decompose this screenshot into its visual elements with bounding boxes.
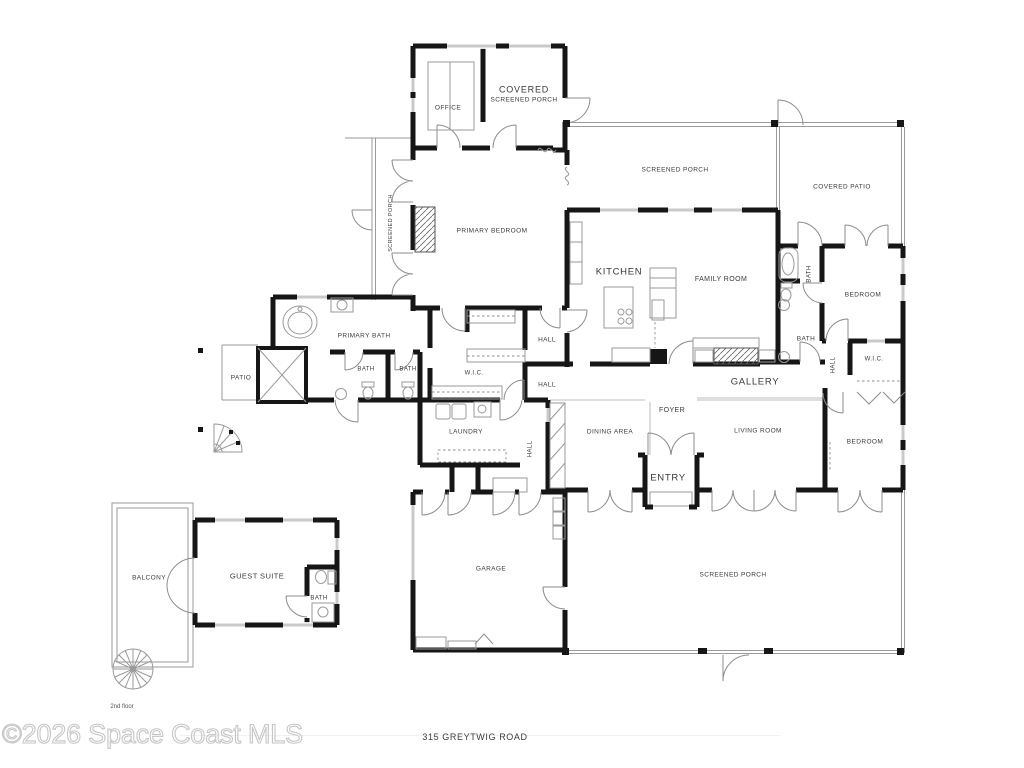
room-label-bath-a: BATH [357,367,374,374]
room-label-gallery: GALLERY [731,378,780,389]
bathtub-primary [283,306,317,338]
floor-note: 2nd floor [110,704,133,710]
toilet [402,382,414,399]
spiral-staircase [113,649,153,689]
room-label-guest-suite: GUEST SUITE [230,573,284,582]
floorplan-page: OFFICE COVERED SCREENED PORCH SCREENED P… [0,0,1024,768]
room-label-guest-bath: BATH [310,596,327,603]
fixtures [113,62,798,689]
room-label-covered-screened-porch: COVERED SCREENED PORCH [491,85,558,104]
mls-watermark: ©2026 Space Coast MLS [2,719,303,750]
floorplan-canvas [0,0,1024,768]
fireplace-primary-bedroom [415,207,435,252]
sink [337,300,347,310]
toilet [316,571,337,585]
kitchen-counter [570,222,676,362]
room-label-office: OFFICE [435,104,461,111]
room-label-bath-upper-right: BATH [807,265,814,282]
porch-and-patio-outlines [112,123,905,668]
room-label-foyer: FOYER [659,407,685,415]
sink [336,389,347,400]
room-label-patio: PATIO [231,374,252,381]
room-label-kitchen: KITCHEN [596,268,643,279]
room-label-bath-b: BATH [399,367,416,374]
walls [195,46,905,653]
room-label-screened-porch-left: SCREENED PORCH [388,194,394,252]
stair-fan [214,424,242,452]
guest-sink [312,603,334,622]
room-label-bath-right-wing: BATH [797,335,815,342]
room-label-primary-bath: PRIMARY BATH [338,332,391,339]
room-label-hall-south: HALL [528,441,535,458]
washer-dryer [436,402,491,419]
room-label-hall-center-upper: HALL [538,336,556,343]
room-label-living-room: LIVING ROOM [734,427,782,434]
room-label-primary-bedroom: PRIMARY BEDROOM [457,227,528,234]
room-label-covered-line2: SCREENED PORCH [491,97,558,104]
room-label-covered-line1: COVERED [499,85,549,95]
room-label-hall-right: HALL [831,357,838,374]
room-label-screened-porch-top: SCREENED PORCH [642,166,709,173]
break-line [538,148,569,185]
room-label-covered-patio: COVERED PATIO [813,183,871,190]
room-label-bedroom-lower-right: BEDROOM [847,438,883,445]
room-label-family-room: FAMILY ROOM [695,276,747,284]
room-label-balcony: BALCONY [132,574,166,581]
room-label-garage: GARAGE [476,565,506,572]
room-label-dining-area: DINING AREA [587,428,633,435]
room-label-laundry: LAUNDRY [449,428,483,435]
room-label-wic-right: W.I.C. [865,357,884,364]
room-label-entry: ENTRY [650,474,686,485]
room-label-screened-porch-bottom: SCREENED PORCH [700,571,767,578]
property-address: 315 GREYTWIG ROAD [422,732,527,742]
fireplace-family-room [714,348,758,364]
bathtub-right-wing [779,248,798,282]
toilet [781,283,792,301]
room-label-bedroom-upper-right: BEDROOM [845,291,881,298]
room-label-wic-center: W.I.C. [465,371,484,378]
kitchen-island [604,287,633,328]
toilet [362,382,374,399]
room-label-hall-center-lower: HALL [538,381,556,388]
